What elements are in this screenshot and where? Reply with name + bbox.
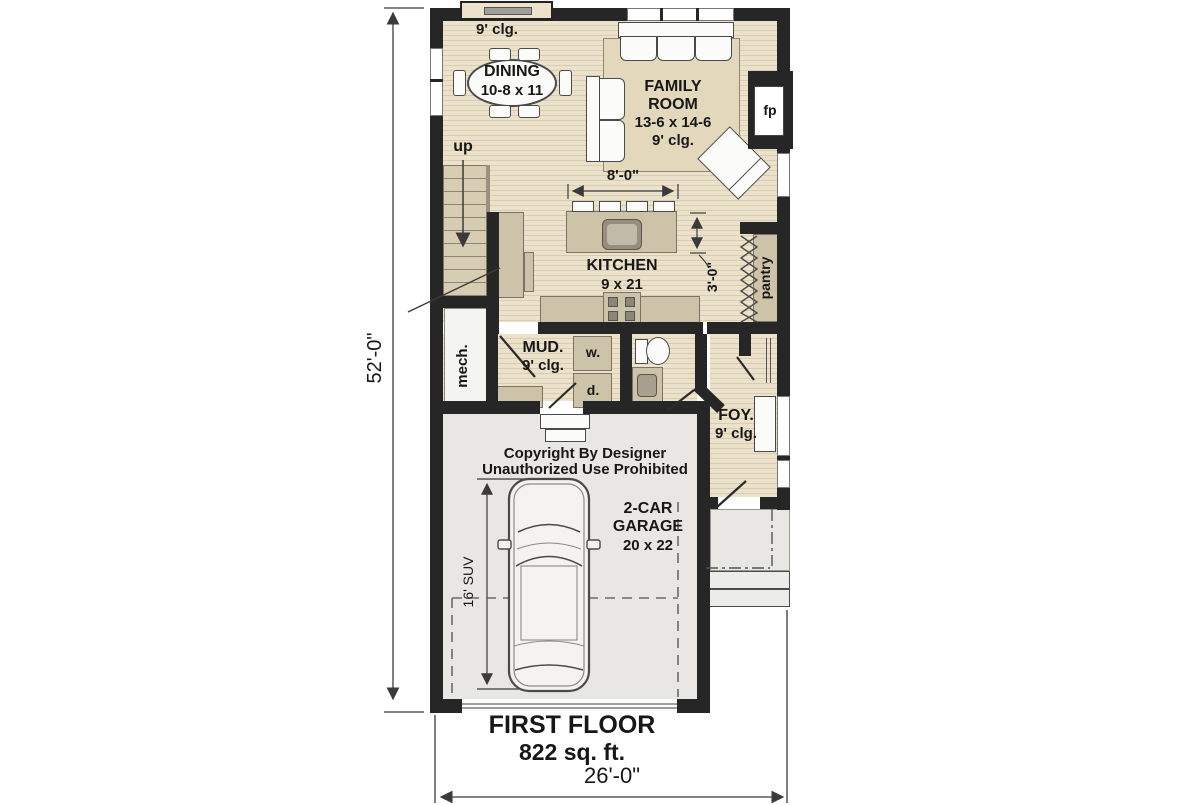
kitchen-cabinet-bump xyxy=(524,252,534,292)
closet-shelf-line xyxy=(766,338,767,383)
dining-chair xyxy=(489,48,511,61)
dining-ceiling-label: 9' clg. xyxy=(455,22,539,38)
window-left xyxy=(430,48,443,116)
copyright-line-2: Unauthorized Use Prohibited xyxy=(455,462,715,478)
dining-chair xyxy=(489,105,511,118)
bar-stool xyxy=(599,201,621,212)
dining-room-label: DINING xyxy=(452,64,572,81)
bar-stool xyxy=(653,201,675,212)
loveseat xyxy=(586,76,600,162)
pantry-north-wall xyxy=(740,222,777,234)
foyer-label: FOY. xyxy=(701,408,771,425)
window-top xyxy=(627,8,734,21)
stair-rail xyxy=(486,165,490,212)
bar-stool xyxy=(572,201,594,212)
garage-size-label: 20 x 22 xyxy=(588,538,708,554)
foyer-north-wall xyxy=(707,322,790,334)
floor-plan: 9' clg. DINING 10-8 x 11 FAMILY ROOM 13-… xyxy=(0,0,1200,805)
kitchen-south-wall xyxy=(538,322,703,334)
window-mullion xyxy=(696,8,699,21)
plan-area: 822 sq. ft. xyxy=(422,740,722,764)
dining-size-label: 10-8 x 11 xyxy=(452,83,572,99)
fireplace-label: fp xyxy=(758,103,782,118)
stairs-mech-wall xyxy=(430,296,493,308)
kitchen-cabinet xyxy=(498,212,524,298)
mud-room-label: MUD. xyxy=(503,340,583,357)
garage-label-1: 2-CAR xyxy=(588,501,708,518)
dim-3-label: 3'-0" xyxy=(705,247,721,307)
range-burner xyxy=(608,297,618,307)
garage-label-2: GARAGE xyxy=(588,519,708,536)
garage-landing-step xyxy=(545,429,586,442)
garage-front-wall-left xyxy=(430,699,462,713)
family-room-label-2: ROOM xyxy=(603,97,743,114)
toilet-bowl xyxy=(646,337,670,365)
dim-26-label: 26'-0" xyxy=(512,764,712,787)
family-room-ceiling-label: 9' clg. xyxy=(603,133,743,149)
dim-8-label: 8'-0" xyxy=(570,168,676,184)
foyer-porch-wall xyxy=(760,497,790,509)
range-burner xyxy=(625,297,635,307)
foyer-porch-wall xyxy=(710,497,718,509)
kitchen-label: KITCHEN xyxy=(557,258,687,275)
foyer-ceiling-label: 9' clg. xyxy=(699,426,773,442)
bay-nook-counter xyxy=(484,7,532,15)
range-burner xyxy=(608,311,618,321)
porch-floor xyxy=(710,509,790,571)
dryer-label: d. xyxy=(578,383,608,398)
powder-east-wall xyxy=(695,334,707,390)
dim-52-label: 52'-0" xyxy=(365,298,391,418)
kitchen-size-label: 9 x 21 xyxy=(557,277,687,293)
garage-landing-step xyxy=(540,414,590,429)
vanity-sink xyxy=(637,374,657,397)
mud-room-ceiling-label: 9' clg. xyxy=(503,358,583,374)
copyright-line-1: Copyright By Designer xyxy=(465,446,705,462)
window-right xyxy=(777,153,790,197)
dining-chair xyxy=(518,48,540,61)
family-room-label-1: FAMILY xyxy=(603,79,743,96)
closet-shelf-line xyxy=(770,338,771,383)
window-foyer xyxy=(777,460,790,488)
sofa-cushion xyxy=(657,36,695,61)
mech-label: mech. xyxy=(455,326,473,406)
range-burner xyxy=(625,311,635,321)
washer-label: w. xyxy=(578,345,608,360)
suv-dimension-label: 16' SUV xyxy=(461,527,479,637)
window-mullion xyxy=(430,79,443,82)
porch-step-1 xyxy=(703,571,790,589)
sofa-cushion xyxy=(695,36,732,61)
pantry-label: pantry xyxy=(758,238,774,318)
stairs-up-label: up xyxy=(446,139,480,156)
bar-stool xyxy=(626,201,648,212)
mud-garage-wall xyxy=(583,401,697,414)
family-room-size-label: 13-6 x 14-6 xyxy=(603,115,743,131)
sofa-cushion xyxy=(620,36,657,61)
window-mullion xyxy=(660,8,663,21)
plan-title: FIRST FLOOR xyxy=(422,712,722,738)
closet-west-stub xyxy=(739,334,751,356)
porch-step-2 xyxy=(700,589,790,607)
staircase xyxy=(443,165,487,297)
dining-chair xyxy=(518,105,540,118)
mech-east-wall xyxy=(486,308,498,414)
front-door-opening xyxy=(777,396,790,456)
island-sink-basin xyxy=(607,224,637,245)
